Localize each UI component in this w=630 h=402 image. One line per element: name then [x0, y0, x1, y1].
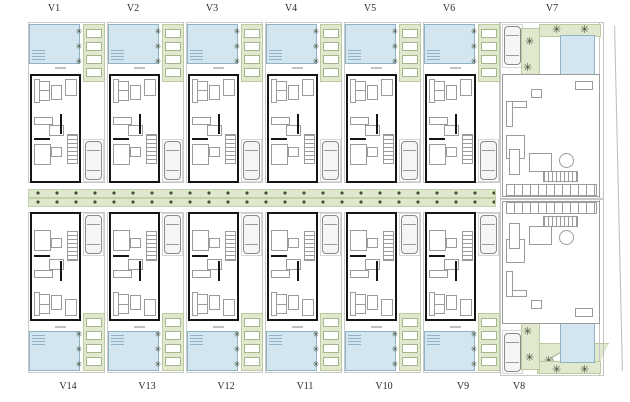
stairs-icon — [383, 231, 394, 261]
lounger-icon — [165, 68, 181, 77]
house-plan — [502, 74, 600, 197]
sun-deck — [399, 24, 421, 82]
interior-wall — [113, 255, 129, 257]
house-plan — [425, 212, 476, 321]
kitchen-counter-icon — [429, 270, 448, 278]
wardrobe-icon — [65, 79, 77, 96]
stairs-icon — [304, 134, 315, 164]
lounger-icon — [402, 42, 418, 51]
car-icon — [243, 215, 260, 254]
bathroom-icon — [51, 147, 62, 157]
villa-label: V7 — [524, 3, 580, 14]
pool — [187, 331, 238, 371]
sofa-icon — [434, 294, 445, 305]
tree-icon: ✳ — [525, 350, 534, 361]
villa-label: V6 — [423, 3, 475, 14]
house-plan — [267, 212, 318, 321]
house-plan — [30, 74, 81, 183]
kitchen-island-icon — [509, 223, 520, 249]
table-icon — [531, 89, 542, 98]
pool — [29, 331, 80, 371]
lounger-icon — [323, 331, 339, 340]
dimension-text — [55, 326, 66, 328]
lounger-icon — [323, 55, 339, 64]
pool-ladder-icon — [111, 50, 124, 61]
villa-lower-half: ✳ ✳ ✳ — [423, 212, 500, 373]
sun-deck — [320, 24, 342, 82]
lounger-icon — [402, 357, 418, 366]
sun-deck — [478, 313, 500, 371]
bathroom-icon — [130, 147, 141, 157]
table-icon — [51, 295, 62, 310]
pool-ladder-icon — [348, 334, 361, 345]
interior-wall — [60, 261, 62, 281]
villa-label: V2 — [107, 3, 159, 14]
villa-label: V11 — [279, 381, 331, 392]
bed-icon — [113, 230, 130, 251]
house-plan — [425, 74, 476, 183]
lounger-icon — [244, 55, 260, 64]
lounger-icon — [323, 318, 339, 327]
house-plan — [346, 74, 397, 183]
dimension-text — [371, 326, 382, 328]
sun-deck — [83, 24, 105, 82]
site-plan-canvas: V7 V8 ✳ ✳ V1 ✳ ✳ ✳ — [0, 0, 630, 402]
kitchen-counter-icon — [429, 117, 448, 125]
bathroom-icon — [209, 238, 220, 248]
sofa-icon — [355, 90, 366, 101]
stairs-icon — [462, 134, 473, 164]
villa-upper-half: ✳ ✳ ✳ — [186, 22, 263, 183]
tree-icon: ✳ — [525, 37, 534, 48]
lounger-icon — [402, 55, 418, 64]
bed-icon — [429, 144, 446, 165]
kitchen-counter-icon — [350, 117, 369, 125]
car-icon — [85, 141, 102, 180]
bed-icon — [192, 144, 209, 165]
interior-wall — [429, 255, 445, 257]
pool-ladder-icon — [269, 334, 282, 345]
lounger-icon — [323, 357, 339, 366]
bed-icon — [350, 230, 367, 251]
sun-deck — [320, 313, 342, 371]
interior-wall — [271, 138, 287, 140]
pool-ladder-icon — [32, 50, 45, 61]
villa-column: V4 ✳ ✳ ✳ — [265, 0, 342, 402]
pool — [187, 24, 238, 64]
stairs-icon — [146, 231, 157, 261]
dimension-text — [213, 326, 224, 328]
kitchen-counter-icon — [192, 270, 211, 278]
lounger-icon — [481, 344, 497, 353]
wardrobe-icon — [381, 79, 393, 96]
car-icon — [504, 333, 521, 372]
stairs-icon — [225, 134, 236, 164]
car-icon — [164, 141, 181, 180]
villa-column: V6 ✳ ✳ ✳ — [423, 0, 500, 402]
sun-deck — [399, 313, 421, 371]
tree-icon: ✳ — [523, 324, 532, 335]
lounger-icon — [481, 42, 497, 51]
kitchen-counter-icon — [506, 184, 597, 196]
house-plan — [188, 212, 239, 321]
bed-icon — [192, 230, 209, 251]
lounger-icon — [323, 29, 339, 38]
car-icon — [85, 215, 102, 254]
car-icon — [504, 26, 521, 65]
wardrobe-icon — [144, 299, 156, 316]
table-icon — [446, 85, 457, 100]
sun-deck — [241, 24, 263, 82]
villa-label: V4 — [265, 3, 317, 14]
villa-label: V13 — [121, 381, 173, 392]
table-icon — [367, 85, 378, 100]
lounger-icon — [165, 318, 181, 327]
sofa-icon — [39, 90, 50, 101]
lounger-icon — [244, 344, 260, 353]
kitchen-counter-icon — [113, 117, 132, 125]
lounger-icon — [402, 331, 418, 340]
round-table-icon — [559, 230, 574, 245]
interior-wall — [34, 138, 50, 140]
interior-wall — [376, 261, 378, 281]
villa-upper-half: ✳ ✳ ✳ — [265, 22, 342, 183]
stairs-icon — [67, 231, 78, 261]
lounger-icon — [244, 331, 260, 340]
lounger-icon — [86, 55, 102, 64]
interior-wall — [218, 114, 220, 134]
interior-wall — [139, 114, 141, 134]
villa-lower-half: ✳ ✳ ✳ — [186, 212, 263, 373]
sofa-icon — [434, 90, 445, 101]
lounger-icon — [402, 68, 418, 77]
lounger-icon — [86, 344, 102, 353]
villa-lower-half: ✳ ✳ ✳ — [107, 212, 184, 373]
wardrobe-icon — [460, 299, 472, 316]
interior-wall — [139, 261, 141, 281]
pool — [108, 24, 159, 64]
pool — [266, 331, 317, 371]
bed-icon — [429, 230, 446, 251]
stairs-icon — [383, 134, 394, 164]
kitchen-counter-icon — [271, 117, 290, 125]
villa-column: V3 ✳ ✳ ✳ — [186, 0, 263, 402]
stairs-icon — [304, 231, 315, 261]
dimension-text — [134, 67, 145, 69]
house-plan — [109, 212, 160, 321]
bathroom-icon — [288, 238, 299, 248]
cabinet-icon — [575, 308, 593, 317]
lounger-icon — [244, 318, 260, 327]
lounger-icon — [244, 357, 260, 366]
table-icon — [130, 85, 141, 100]
sofa-icon — [197, 294, 208, 305]
villa-column: V5 ✳ ✳ ✳ — [344, 0, 421, 402]
lounger-icon — [165, 344, 181, 353]
sun-deck — [241, 313, 263, 371]
villa-label: V8 — [497, 381, 541, 392]
kitchen-island-icon — [509, 149, 520, 175]
villa-label: V10 — [358, 381, 410, 392]
lounger-icon — [402, 318, 418, 327]
pool-ladder-icon — [427, 334, 440, 345]
table-icon — [130, 295, 141, 310]
bathroom-icon — [367, 147, 378, 157]
sofa-icon — [512, 101, 527, 108]
car-icon — [322, 141, 339, 180]
house-plan — [30, 212, 81, 321]
house-plan — [109, 74, 160, 183]
bed-icon — [271, 144, 288, 165]
stairs-icon — [543, 171, 578, 182]
interior-wall — [271, 255, 287, 257]
villa-upper-half: ✳ ✳ ✳ — [107, 22, 184, 183]
bed-icon — [34, 230, 51, 251]
lounger-icon — [481, 357, 497, 366]
interior-wall — [34, 255, 50, 257]
dimension-text — [134, 326, 145, 328]
pool — [424, 24, 475, 64]
table-icon — [288, 295, 299, 310]
interior-wall — [350, 138, 366, 140]
tree-icon: ✳ — [580, 362, 589, 373]
dimension-text — [450, 67, 461, 69]
bathroom-icon — [209, 147, 220, 157]
pool — [345, 24, 396, 64]
villa-lower-half: ✳ ✳ ✳ — [28, 212, 105, 373]
round-table-icon — [559, 153, 574, 168]
dimension-text — [55, 67, 66, 69]
car-icon — [401, 215, 418, 254]
sofa-icon — [197, 90, 208, 101]
lounger-icon — [323, 42, 339, 51]
corner-villa: ✳ ✳ ✳ ✳ — [500, 22, 620, 199]
kitchen-counter-icon — [271, 270, 290, 278]
pool — [29, 24, 80, 64]
lounger-icon — [165, 55, 181, 64]
sun-deck — [478, 24, 500, 82]
sun-deck — [83, 313, 105, 371]
dimension-text — [292, 67, 303, 69]
bathroom-icon — [51, 238, 62, 248]
villa-label: V1 — [28, 3, 80, 14]
lounger-icon — [86, 29, 102, 38]
interior-wall — [192, 255, 208, 257]
table-icon — [446, 295, 457, 310]
sofa-icon — [276, 90, 287, 101]
lounger-icon — [244, 42, 260, 51]
villa-column: V1 ✳ ✳ ✳ — [28, 0, 105, 402]
villa-label: V5 — [344, 3, 396, 14]
dining-table-icon — [529, 153, 552, 172]
tree-icon: ✳ — [523, 63, 532, 74]
kitchen-counter-icon — [113, 270, 132, 278]
house-plan — [188, 74, 239, 183]
table-icon — [209, 295, 220, 310]
lounger-icon — [244, 29, 260, 38]
sofa-icon — [512, 290, 527, 297]
house-plan — [346, 212, 397, 321]
stairs-icon — [67, 134, 78, 164]
villa-upper-half: ✳ ✳ ✳ — [423, 22, 500, 183]
bathroom-icon — [446, 147, 457, 157]
interior-wall — [297, 261, 299, 281]
interior-wall — [376, 114, 378, 134]
lounger-icon — [86, 318, 102, 327]
table-icon — [209, 85, 220, 100]
stairs-icon — [462, 231, 473, 261]
lounger-icon — [323, 68, 339, 77]
table-icon — [531, 300, 542, 309]
wardrobe-icon — [65, 299, 77, 316]
dimension-text — [213, 67, 224, 69]
dimension-text — [450, 326, 461, 328]
pool-ladder-icon — [348, 50, 361, 61]
pool-ladder-icon — [190, 50, 203, 61]
bed-icon — [271, 230, 288, 251]
car-icon — [243, 141, 260, 180]
kitchen-counter-icon — [34, 270, 53, 278]
pool — [266, 24, 317, 64]
interior-wall — [192, 138, 208, 140]
wardrobe-icon — [460, 79, 472, 96]
interior-wall — [429, 138, 445, 140]
villa-column: V2 ✳ ✳ ✳ — [107, 0, 184, 402]
lounger-icon — [402, 29, 418, 38]
table-icon — [51, 85, 62, 100]
sofa-icon — [118, 90, 129, 101]
sun-deck — [162, 313, 184, 371]
sofa-icon — [355, 294, 366, 305]
dimension-text — [371, 67, 382, 69]
interior-wall — [297, 114, 299, 134]
bathroom-icon — [367, 238, 378, 248]
lounger-icon — [86, 331, 102, 340]
kitchen-counter-icon — [34, 117, 53, 125]
villa-label: V3 — [186, 3, 238, 14]
bed-icon — [350, 144, 367, 165]
interior-wall — [455, 261, 457, 281]
table-icon — [288, 85, 299, 100]
lounger-icon — [481, 55, 497, 64]
sun-deck — [162, 24, 184, 82]
bed-icon — [113, 144, 130, 165]
villa-lower-half: ✳ ✳ ✳ — [344, 212, 421, 373]
bathroom-icon — [288, 147, 299, 157]
dining-table-icon — [529, 226, 552, 245]
lounger-icon — [481, 318, 497, 327]
table-icon — [367, 295, 378, 310]
lounger-icon — [165, 357, 181, 366]
pool-ladder-icon — [269, 50, 282, 61]
lounger-icon — [165, 29, 181, 38]
pool-ladder-icon — [111, 334, 124, 345]
bathroom-icon — [130, 238, 141, 248]
car-icon — [480, 141, 497, 180]
interior-wall — [455, 114, 457, 134]
bathroom-icon — [446, 238, 457, 248]
pool-ladder-icon — [190, 334, 203, 345]
lounger-icon — [86, 357, 102, 366]
villa-label: V9 — [437, 381, 489, 392]
sofa-icon — [39, 294, 50, 305]
car-icon — [164, 215, 181, 254]
corner-villa: ✳ ✳ ✳ ✳ — [500, 199, 620, 376]
house-plan — [267, 74, 318, 183]
lounger-icon — [402, 344, 418, 353]
lounger-icon — [481, 331, 497, 340]
tree-icon: ✳ — [552, 362, 561, 373]
villa-label: V14 — [42, 381, 94, 392]
interior-wall — [350, 255, 366, 257]
pool-ladder-icon — [32, 334, 45, 345]
pool — [424, 331, 475, 371]
wardrobe-icon — [223, 79, 235, 96]
pool — [345, 331, 396, 371]
kitchen-counter-icon — [350, 270, 369, 278]
lounger-icon — [165, 42, 181, 51]
pool-ladder-icon — [427, 50, 440, 61]
lounger-icon — [86, 42, 102, 51]
lounger-icon — [165, 331, 181, 340]
wardrobe-icon — [302, 79, 314, 96]
sofa-icon — [276, 294, 287, 305]
car-icon — [322, 215, 339, 254]
wardrobe-icon — [302, 299, 314, 316]
lounger-icon — [481, 68, 497, 77]
lounger-icon — [86, 68, 102, 77]
stairs-icon — [225, 231, 236, 261]
bed-icon — [34, 144, 51, 165]
wardrobe-icon — [381, 299, 393, 316]
interior-wall — [218, 261, 220, 281]
villa-upper-half: ✳ ✳ ✳ — [28, 22, 105, 183]
car-icon — [480, 215, 497, 254]
lounger-icon — [323, 344, 339, 353]
cabinet-icon — [575, 81, 593, 90]
wardrobe-icon — [144, 79, 156, 96]
villa-label: V12 — [200, 381, 252, 392]
villa-upper-half: ✳ ✳ ✳ — [344, 22, 421, 183]
pool — [108, 331, 159, 371]
kitchen-counter-icon — [506, 202, 597, 214]
house-plan — [502, 201, 600, 324]
sofa-icon — [118, 294, 129, 305]
interior-wall — [113, 138, 129, 140]
villa-lower-half: ✳ ✳ ✳ — [265, 212, 342, 373]
dimension-text — [292, 326, 303, 328]
kitchen-counter-icon — [192, 117, 211, 125]
stairs-icon — [146, 134, 157, 164]
lounger-icon — [481, 29, 497, 38]
car-icon — [401, 141, 418, 180]
stairs-icon — [543, 216, 578, 227]
interior-wall — [60, 114, 62, 134]
lounger-icon — [244, 68, 260, 77]
wardrobe-icon — [223, 299, 235, 316]
